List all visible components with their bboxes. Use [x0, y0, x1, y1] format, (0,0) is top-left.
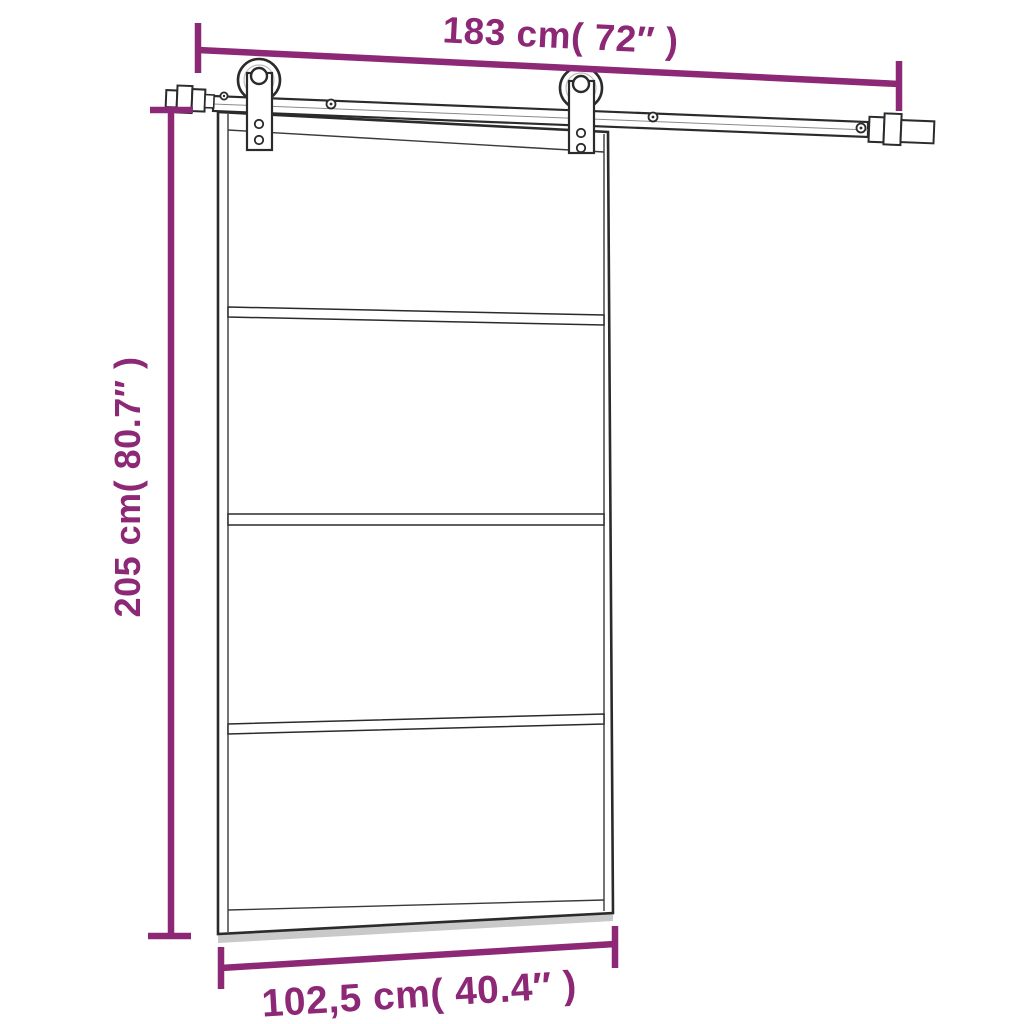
roller-left-bolt-1 — [255, 120, 263, 128]
rail-width-label: 183 cm( 72″ ) — [442, 9, 680, 61]
door-height-label: 205 cm( 80.7″ ) — [107, 357, 148, 618]
glass-panel-2 — [228, 317, 604, 514]
rail-screw-2 — [327, 100, 336, 109]
divider-bar-2 — [228, 514, 604, 525]
rail-screw-4 — [857, 124, 866, 133]
dimension-rail-width: 183 cm( 72″ ) — [198, 9, 899, 111]
door-width-label: 102,5 cm( 40.4″ ) — [260, 963, 578, 1024]
dimension-door-width: 102,5 cm( 40.4″ ) — [221, 926, 615, 1024]
glass-panel-1 — [228, 130, 604, 315]
diagram-stage: 183 cm( 72″ ) 205 cm( 80.7″ ) 102,5 cm( … — [0, 0, 1024, 1024]
glass-panel-3 — [228, 525, 604, 724]
roller-right-bolt-2 — [577, 144, 585, 152]
roller-right-bolt-1 — [577, 129, 585, 137]
roller-left-bolt-2 — [255, 136, 263, 144]
rail-end-stop-right — [868, 113, 934, 147]
glass-panel-4 — [228, 724, 604, 910]
rail-screw-3 — [649, 113, 658, 122]
roller-right-hub — [573, 76, 589, 92]
diagram-canvas: 183 cm( 72″ ) 205 cm( 80.7″ ) 102,5 cm( … — [0, 0, 1024, 1024]
rail-screw-1 — [220, 92, 227, 99]
sliding-door — [218, 112, 613, 943]
dimension-door-height: 205 cm( 80.7″ ) — [107, 110, 193, 936]
roller-left-hub — [251, 68, 267, 84]
